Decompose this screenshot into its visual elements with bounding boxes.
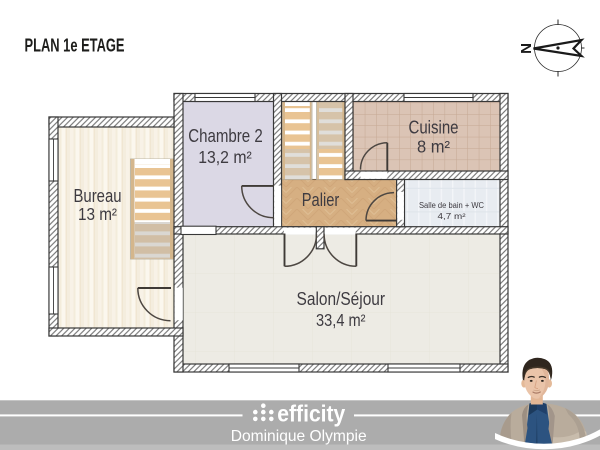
svg-text:Palier: Palier (302, 190, 340, 210)
svg-text:Salon/Séjour: Salon/Séjour (297, 289, 386, 309)
svg-text:N: N (518, 43, 535, 54)
svg-text:Cuisine: Cuisine (409, 118, 459, 138)
svg-text:Bureau: Bureau (74, 186, 122, 206)
svg-text:PLAN 1e ETAGE: PLAN 1e ETAGE (25, 36, 125, 56)
svg-text:8 m²: 8 m² (417, 137, 450, 157)
svg-text:13 m²: 13 m² (78, 204, 117, 224)
svg-text:Chambre 2: Chambre 2 (188, 126, 263, 146)
svg-text:4,7 m²: 4,7 m² (438, 212, 466, 221)
svg-text:efficity: efficity (277, 401, 345, 427)
svg-text:33,4 m²: 33,4 m² (316, 310, 366, 330)
svg-text:Dominique Olympie: Dominique Olympie (231, 428, 367, 445)
svg-text:13,2 m²: 13,2 m² (198, 147, 252, 167)
svg-text:Salle de bain + WC: Salle de bain + WC (419, 201, 484, 210)
